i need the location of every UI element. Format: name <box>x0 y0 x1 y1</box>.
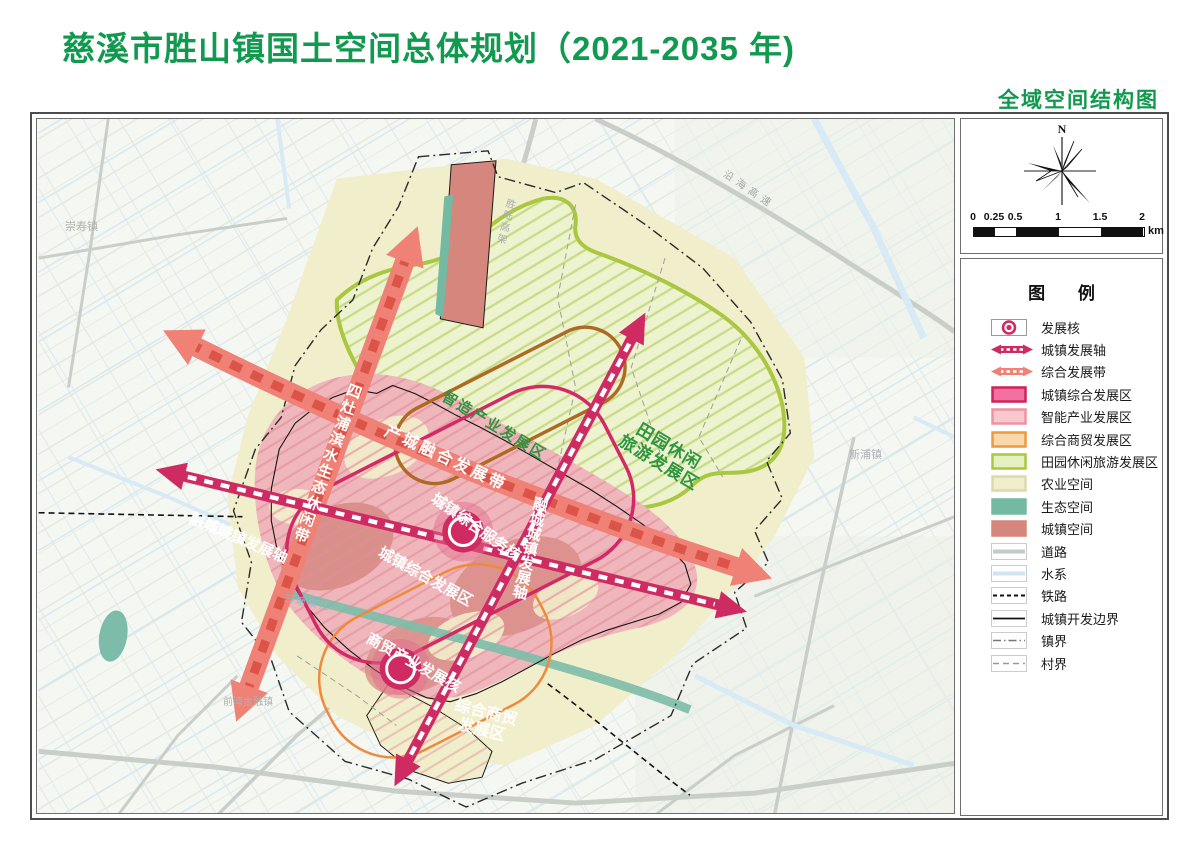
legend-symbol-box <box>991 520 1033 537</box>
scale-unit: km <box>1148 225 1164 237</box>
legend-symbol-box <box>991 408 1033 425</box>
legend-row: 铁路 <box>961 585 1162 607</box>
legend-box: 图 例 发展核城镇发展轴综合发展带城镇综合发展区智能产业发展区综合商贸发展区田园… <box>960 258 1163 816</box>
compass-scale-box: N 00.250.511.52 km <box>960 118 1163 254</box>
scale-tick: 0 <box>970 211 976 223</box>
legend-row: 镇界 <box>961 629 1162 651</box>
legend-row: 城镇综合发展区 <box>961 383 1162 405</box>
legend-row: 水系 <box>961 562 1162 584</box>
north-arrow: N <box>1014 121 1110 212</box>
legend-row: 综合商贸发展区 <box>961 428 1162 450</box>
legend-symbol-box <box>991 431 1033 448</box>
legend-title: 图 例 <box>961 279 1162 304</box>
scale-segment <box>1016 228 1059 236</box>
legend-label: 城镇空间 <box>1041 519 1093 538</box>
legend-symbol-arrow <box>991 363 1033 380</box>
map-canvas: 四灶浦滨水生态休闲带产城融合发展带智造产业发展区田园休闲旅游发展区城镇综合服务核… <box>36 118 955 814</box>
legend-label: 道路 <box>1041 542 1067 561</box>
legend-items: 发展核城镇发展轴综合发展带城镇综合发展区智能产业发展区综合商贸发展区田园休闲旅游… <box>961 316 1162 674</box>
page-title: 慈溪市胜山镇国土空间总体规划（2021-2035 年) <box>62 22 795 70</box>
scale-tick: 0.5 <box>1008 211 1023 223</box>
legend-label: 城镇开发边界 <box>1041 609 1119 628</box>
scale-tick: 0.25 <box>984 211 1004 223</box>
legend-row: 田园休闲旅游发展区 <box>961 450 1162 472</box>
legend-row: 智能产业发展区 <box>961 406 1162 428</box>
legend-symbol-box <box>991 386 1033 403</box>
development-core-trade <box>371 639 431 699</box>
plan-sheet: 慈溪市胜山镇国土空间总体规划（2021-2035 年) 全域空间结构图 <box>0 0 1199 848</box>
legend-row: 发展核 <box>961 316 1162 338</box>
legend-label: 城镇综合发展区 <box>1041 385 1132 404</box>
legend-symbol-box <box>991 475 1033 492</box>
scale-segment <box>995 228 1016 236</box>
legend-symbol-core <box>991 319 1033 336</box>
legend-label: 发展核 <box>1041 318 1080 337</box>
legend-row: 村界 <box>961 652 1162 674</box>
map-figure: 四灶浦滨水生态休闲带产城融合发展带智造产业发展区田园休闲旅游发展区城镇综合服务核… <box>30 112 1169 820</box>
legend-symbol-dash <box>991 587 1033 604</box>
scale-tick: 1.5 <box>1093 211 1108 223</box>
legend-symbol-dashdot <box>991 632 1033 649</box>
scale-tick: 2 <box>1139 211 1145 223</box>
legend-label: 城镇发展轴 <box>1041 340 1106 359</box>
legend-row: 综合发展带 <box>961 361 1162 383</box>
development-core-town <box>433 502 493 562</box>
legend-row: 城镇发展轴 <box>961 338 1162 360</box>
legend-row: 城镇开发边界 <box>961 607 1162 629</box>
legend-symbol-box <box>991 498 1033 515</box>
legend-label: 镇界 <box>1041 631 1067 650</box>
scale-segment <box>1101 228 1143 236</box>
page-subtitle: 全域空间结构图 <box>998 84 1159 114</box>
legend-symbol-line <box>991 543 1033 560</box>
legend-label: 田园休闲旅游发展区 <box>1041 452 1158 471</box>
legend-row: 城镇空间 <box>961 518 1162 540</box>
scale-tick-labels: 00.250.511.52 <box>973 211 1143 225</box>
scale-tick: 1 <box>1055 211 1061 223</box>
legend-label: 综合商贸发展区 <box>1041 430 1132 449</box>
scale-segment <box>1059 228 1101 236</box>
legend-symbol-box <box>991 453 1033 470</box>
legend-label: 铁路 <box>1041 586 1067 605</box>
legend-label: 村界 <box>1041 654 1067 673</box>
legend-label: 水系 <box>1041 564 1067 583</box>
legend-symbol-dash <box>991 655 1033 672</box>
legend-symbol-line <box>991 565 1033 582</box>
map-drawing <box>37 119 955 814</box>
legend-row: 生态空间 <box>961 495 1162 517</box>
legend-row: 农业空间 <box>961 473 1162 495</box>
legend-label: 生态空间 <box>1041 497 1093 516</box>
scale-segment <box>974 228 995 236</box>
north-letter: N <box>1057 122 1066 136</box>
scale-segments <box>973 227 1145 237</box>
legend-label: 综合发展带 <box>1041 362 1106 381</box>
legend-symbol-arrow <box>991 341 1033 358</box>
legend-row: 道路 <box>961 540 1162 562</box>
legend-symbol-line <box>991 610 1033 627</box>
legend-label: 智能产业发展区 <box>1041 407 1132 426</box>
scale-bar: 00.250.511.52 km <box>973 211 1163 251</box>
legend-label: 农业空间 <box>1041 474 1093 493</box>
